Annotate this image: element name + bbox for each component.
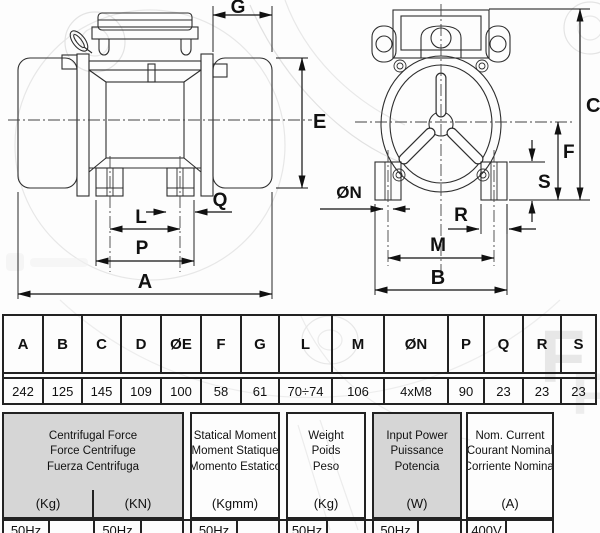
dim-header-cell: ØE [162, 316, 202, 372]
spec-title-line: Fuerza Centrifuga [47, 460, 139, 476]
side-view-labels: G E Q L P A [135, 0, 326, 293]
spec-unit-cell: (A) [468, 490, 552, 517]
spec-gap-cell [280, 521, 288, 533]
spec-title-line: Peso [313, 460, 339, 476]
dim-value-cell: 58 [202, 379, 242, 403]
dim-header-cell: C [83, 316, 122, 372]
spec-title-line: Weight [308, 429, 344, 445]
dim-label-r: R [454, 205, 468, 226]
spec-group-title: Nom. Current Courant Nominal Corriente N… [468, 414, 552, 490]
spec-title-line: Statical Moment [194, 429, 276, 445]
spec-unit-cell: (Kg) [288, 490, 364, 517]
dim-value-cell: 106 [333, 379, 385, 403]
dim-header-cell: D [122, 316, 162, 372]
dim-header-cell: P [449, 316, 485, 372]
spec-unit-cell: (W) [374, 490, 460, 517]
dim-value-cell: 23 [562, 379, 595, 403]
dim-label-n: ØN [336, 183, 362, 202]
spec-title-line: Puissance [390, 444, 443, 460]
front-view-labels: C F S ØN R M B [336, 95, 600, 289]
side-view-drawing [8, 13, 312, 272]
dim-value-cell: 70÷74 [280, 379, 333, 403]
spec-unit-cell: (KN) [92, 490, 182, 517]
dim-header-cell: Q [485, 316, 524, 372]
dim-header-cell: S [562, 316, 595, 372]
spec-units-row: (Kgmm) [192, 490, 278, 517]
spec-value-cell: 50Hz [288, 521, 328, 533]
spec-value-cell: 50Hz [374, 521, 419, 533]
dim-label-l: L [135, 207, 147, 228]
dim-value-cell: 100 [162, 379, 202, 403]
dim-label-g: G [231, 0, 246, 18]
dim-label-e: E [313, 111, 326, 133]
spec-value-cell [50, 521, 95, 533]
spec-title-line: Moment Statique [192, 444, 278, 460]
dim-header-cell: F [202, 316, 242, 372]
spec-group-weight: Weight Poids Peso (Kg) [286, 412, 366, 519]
dim-header-cell: ØN [385, 316, 449, 372]
spec-title-line: Nom. Current [475, 429, 544, 445]
dim-value-cell: 109 [122, 379, 162, 403]
spec-group-centrifugal-force: Centrifugal Force Force Centrifuge Fuerz… [2, 412, 184, 519]
spec-units-row: (A) [468, 490, 552, 517]
spec-value-cell [328, 521, 366, 533]
dimension-table: A B C D ØE F G L M ØN P Q R S 242 125 14… [2, 314, 597, 405]
spec-group-title: Statical Moment Moment Statique Momento … [192, 414, 278, 490]
spec-title-line: Momento Estatico [192, 460, 278, 476]
spec-data-row: 50Hz 50Hz 50Hz 50Hz 50Hz 400V [2, 519, 554, 533]
dim-header-cell: L [280, 316, 333, 372]
spec-title-line: Poids [312, 444, 341, 460]
dim-value-cell: 145 [83, 379, 122, 403]
dim-label-f: F [563, 142, 575, 163]
spec-units-row: (Kg) (KN) [4, 490, 182, 517]
dim-value-cell: 23 [524, 379, 562, 403]
side-view-dimensions [18, 6, 308, 299]
spec-value-cell [419, 521, 462, 533]
spec-units-row: (Kg) [288, 490, 364, 517]
spec-value-cell: 400V [468, 521, 507, 533]
dimension-table-header-row: A B C D ØE F G L M ØN P Q R S [4, 316, 595, 374]
dim-value-cell: 23 [485, 379, 524, 403]
dim-label-b: B [431, 267, 445, 289]
dimension-table-value-row: 242 125 145 109 100 58 61 70÷74 106 4xM8… [4, 379, 595, 403]
dim-header-cell: A [4, 316, 44, 372]
spec-value-cell [142, 521, 184, 533]
dim-header-cell: R [524, 316, 562, 372]
spec-value-cell [238, 521, 280, 533]
spec-unit-cell: (Kg) [4, 490, 92, 517]
spec-gap-cell [366, 521, 374, 533]
spec-group-title: Weight Poids Peso [288, 414, 364, 490]
dim-value-cell: 242 [4, 379, 44, 403]
spec-group-title: Input Power Puissance Potencia [374, 414, 460, 490]
dim-header-cell: B [44, 316, 83, 372]
spec-group-input-power: Input Power Puissance Potencia (W) [372, 412, 462, 519]
front-view-drawing [355, 4, 572, 272]
spec-title-line: Input Power [386, 429, 447, 445]
dim-label-p: P [136, 238, 149, 259]
spec-value-cell [507, 521, 552, 533]
spec-group-nominal-current: Nom. Current Courant Nominal Corriente N… [466, 412, 554, 519]
dim-label-s: S [538, 172, 551, 193]
dim-value-cell: 90 [449, 379, 485, 403]
dim-value-cell: 4xM8 [385, 379, 449, 403]
spec-title-line: Centrifugal Force [49, 429, 137, 445]
spec-gap-cell [184, 521, 192, 533]
dim-label-q: Q [213, 190, 228, 211]
dim-label-m: M [430, 235, 446, 256]
spec-value-cell: 50Hz [95, 521, 142, 533]
spec-group-statical-moment: Statical Moment Moment Statique Momento … [190, 412, 280, 519]
spec-group-title: Centrifugal Force Force Centrifuge Fuerz… [4, 414, 182, 490]
spec-unit-cell: (Kgmm) [192, 490, 278, 517]
spec-title-line: Corriente Nominal [468, 460, 552, 476]
spec-value-cell: 50Hz [4, 521, 50, 533]
front-view-dimensions [320, 9, 590, 295]
dim-value-cell: 61 [242, 379, 280, 403]
dim-value-cell: 125 [44, 379, 83, 403]
dim-label-c: C [586, 95, 600, 117]
dim-label-a: A [138, 271, 152, 293]
spec-units-row: (W) [374, 490, 460, 517]
spec-title-line: Force Centrifuge [50, 444, 136, 460]
dim-header-cell: M [333, 316, 385, 372]
spec-title-line: Courant Nominal [468, 444, 552, 460]
spec-value-cell: 50Hz [192, 521, 238, 533]
dim-header-cell: G [242, 316, 280, 372]
spec-sheet-page: F F [0, 0, 600, 533]
spec-title-line: Potencia [395, 460, 440, 476]
